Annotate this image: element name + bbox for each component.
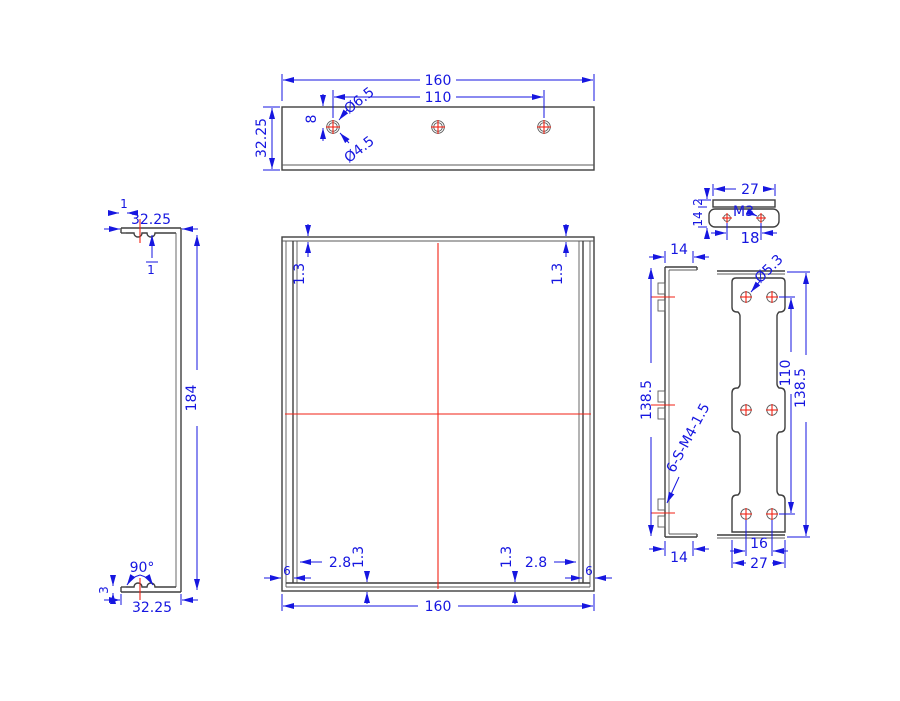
dim-tab-hole-span-label: 18 <box>740 229 759 247</box>
dim-side-top-thickness-label: 1 <box>147 263 155 277</box>
dim-top-hole-span-label: 110 <box>425 90 452 106</box>
dim-profile-flange-top-label: 14 <box>670 242 688 258</box>
top-view: 160 110 32.25 8 Ø6.5 <box>254 73 594 170</box>
dim-front-thk-tr-label: 1.3 <box>550 263 566 285</box>
callout-tab-thread-label: M3 <box>733 204 754 220</box>
dim-tab-lip-label: 2 <box>691 198 705 206</box>
dim-side-top-width-label: 32.25 <box>131 212 171 228</box>
dim-side-bend-angle: 90° <box>127 560 154 585</box>
dim-side-top-lip-label: 1 <box>120 197 128 211</box>
dim-side-top-lip: 1 <box>111 197 135 213</box>
top-view-outline <box>282 107 594 170</box>
dim-front-thk-tl-label: 1.3 <box>292 263 308 285</box>
side-top-flange-inner <box>126 233 176 237</box>
callout-cbore-label: Ø6.5 <box>341 84 377 117</box>
callout-standoff: 6-S-M4-1.5 <box>664 401 714 503</box>
tab-view: M3 27 18 2 14 <box>691 182 779 247</box>
profile-standoff-top <box>651 283 675 311</box>
dim-front-inset-right-label: 2.8 <box>525 555 547 571</box>
front-view: 1.3 1.3 1.3 1.3 2.8 2.8 <box>264 224 612 615</box>
dim-back-height-label: 138.5 <box>793 368 809 408</box>
dim-top-width-label: 160 <box>425 73 452 89</box>
dim-front-width-label: 160 <box>425 599 452 615</box>
dim-front-edge-right-label: 6 <box>585 564 593 578</box>
drawing-canvas: 160 110 32.25 8 Ø6.5 <box>0 0 900 696</box>
dim-front-thk-br: 1.3 <box>499 546 515 604</box>
dim-front-thk-bl: 1.3 <box>351 546 367 604</box>
dim-side-bottom-width: 32.25 <box>104 594 198 616</box>
dim-front-edge-left-label: 6 <box>283 564 291 578</box>
dim-front-edge-right: 6 <box>565 564 612 578</box>
callout-cbore: Ø6.5 <box>339 84 378 120</box>
side-view: 32.25 1 1 184 90° 3 <box>97 197 200 616</box>
dim-front-inset-left: 2.8 <box>300 555 351 571</box>
dim-front-thk-tr: 1.3 <box>550 224 566 285</box>
dim-profile-height: 138.5 <box>639 268 655 536</box>
dim-back-height: 138.5 <box>787 272 810 537</box>
dim-side-top-width: 32.25 <box>104 212 198 229</box>
dim-top-depth-label: 32.25 <box>254 118 270 158</box>
back-view: Ø5.3 110 138.5 16 <box>717 252 810 572</box>
tab-hole-left <box>722 213 732 223</box>
dim-tab-depth-label: 14 <box>691 211 705 226</box>
dim-side-bottom-thickness-label: 3 <box>97 586 111 594</box>
dim-front-width: 160 <box>282 594 594 615</box>
dim-back-hole-span-h-label: 16 <box>750 536 768 552</box>
dim-top-depth: 32.25 <box>254 107 280 170</box>
dim-front-thk-tl: 1.3 <box>292 224 308 285</box>
dim-top-hole-offset: 8 <box>304 94 323 141</box>
back-outline <box>732 278 785 532</box>
dim-profile-flange-bottom: 14 <box>649 541 709 566</box>
top-view-hole-right <box>537 120 551 134</box>
dim-side-bottom-width-label: 32.25 <box>132 600 172 616</box>
callout-back-hole-label: Ø5.3 <box>752 252 787 287</box>
callout-standoff-label: 6-S-M4-1.5 <box>664 401 714 476</box>
dim-front-thk-br-label: 1.3 <box>499 546 515 568</box>
dim-profile-height-label: 138.5 <box>639 380 655 420</box>
dim-back-width-label: 27 <box>750 556 768 572</box>
dim-front-inset-left-label: 2.8 <box>329 555 351 571</box>
callout-hole-label: Ø4.5 <box>341 133 377 166</box>
dim-front-thk-bl-label: 1.3 <box>351 546 367 568</box>
dim-front-edge-left: 6 <box>264 564 311 578</box>
top-view-hole-center <box>431 120 445 134</box>
tab-hole-right <box>756 213 766 223</box>
profile-standoff-bottom <box>651 499 675 527</box>
back-holes <box>740 291 778 520</box>
dim-side-top-thickness: 1 <box>146 235 158 277</box>
callout-hole: Ø4.5 <box>340 133 378 166</box>
dim-profile-flange-top: 14 <box>649 242 709 263</box>
dim-profile-flange-bottom-label: 14 <box>670 550 688 566</box>
dim-back-hole-span-v-label: 110 <box>778 360 794 387</box>
dim-tab-depth: 14 <box>691 211 707 227</box>
dim-tab-width: 27 <box>713 182 775 198</box>
dim-side-height: 184 <box>184 235 200 590</box>
callout-tab-thread: M3 <box>733 204 757 220</box>
top-view-hole-left <box>326 120 340 134</box>
callout-back-hole: Ø5.3 <box>751 252 787 292</box>
dim-side-height-label: 184 <box>184 385 200 412</box>
dim-top-hole-offset-label: 8 <box>304 115 320 124</box>
dim-front-inset-right: 2.8 <box>525 555 576 571</box>
side-bottom-flange-inner <box>126 583 176 587</box>
dim-side-bend-angle-label: 90° <box>130 560 155 576</box>
profile-view: 14 14 138.5 6-S-M4-1.5 <box>639 242 713 566</box>
cad-drawing-page: 160 110 32.25 8 Ø6.5 <box>0 0 900 696</box>
dim-tab-width-label: 27 <box>741 182 759 198</box>
